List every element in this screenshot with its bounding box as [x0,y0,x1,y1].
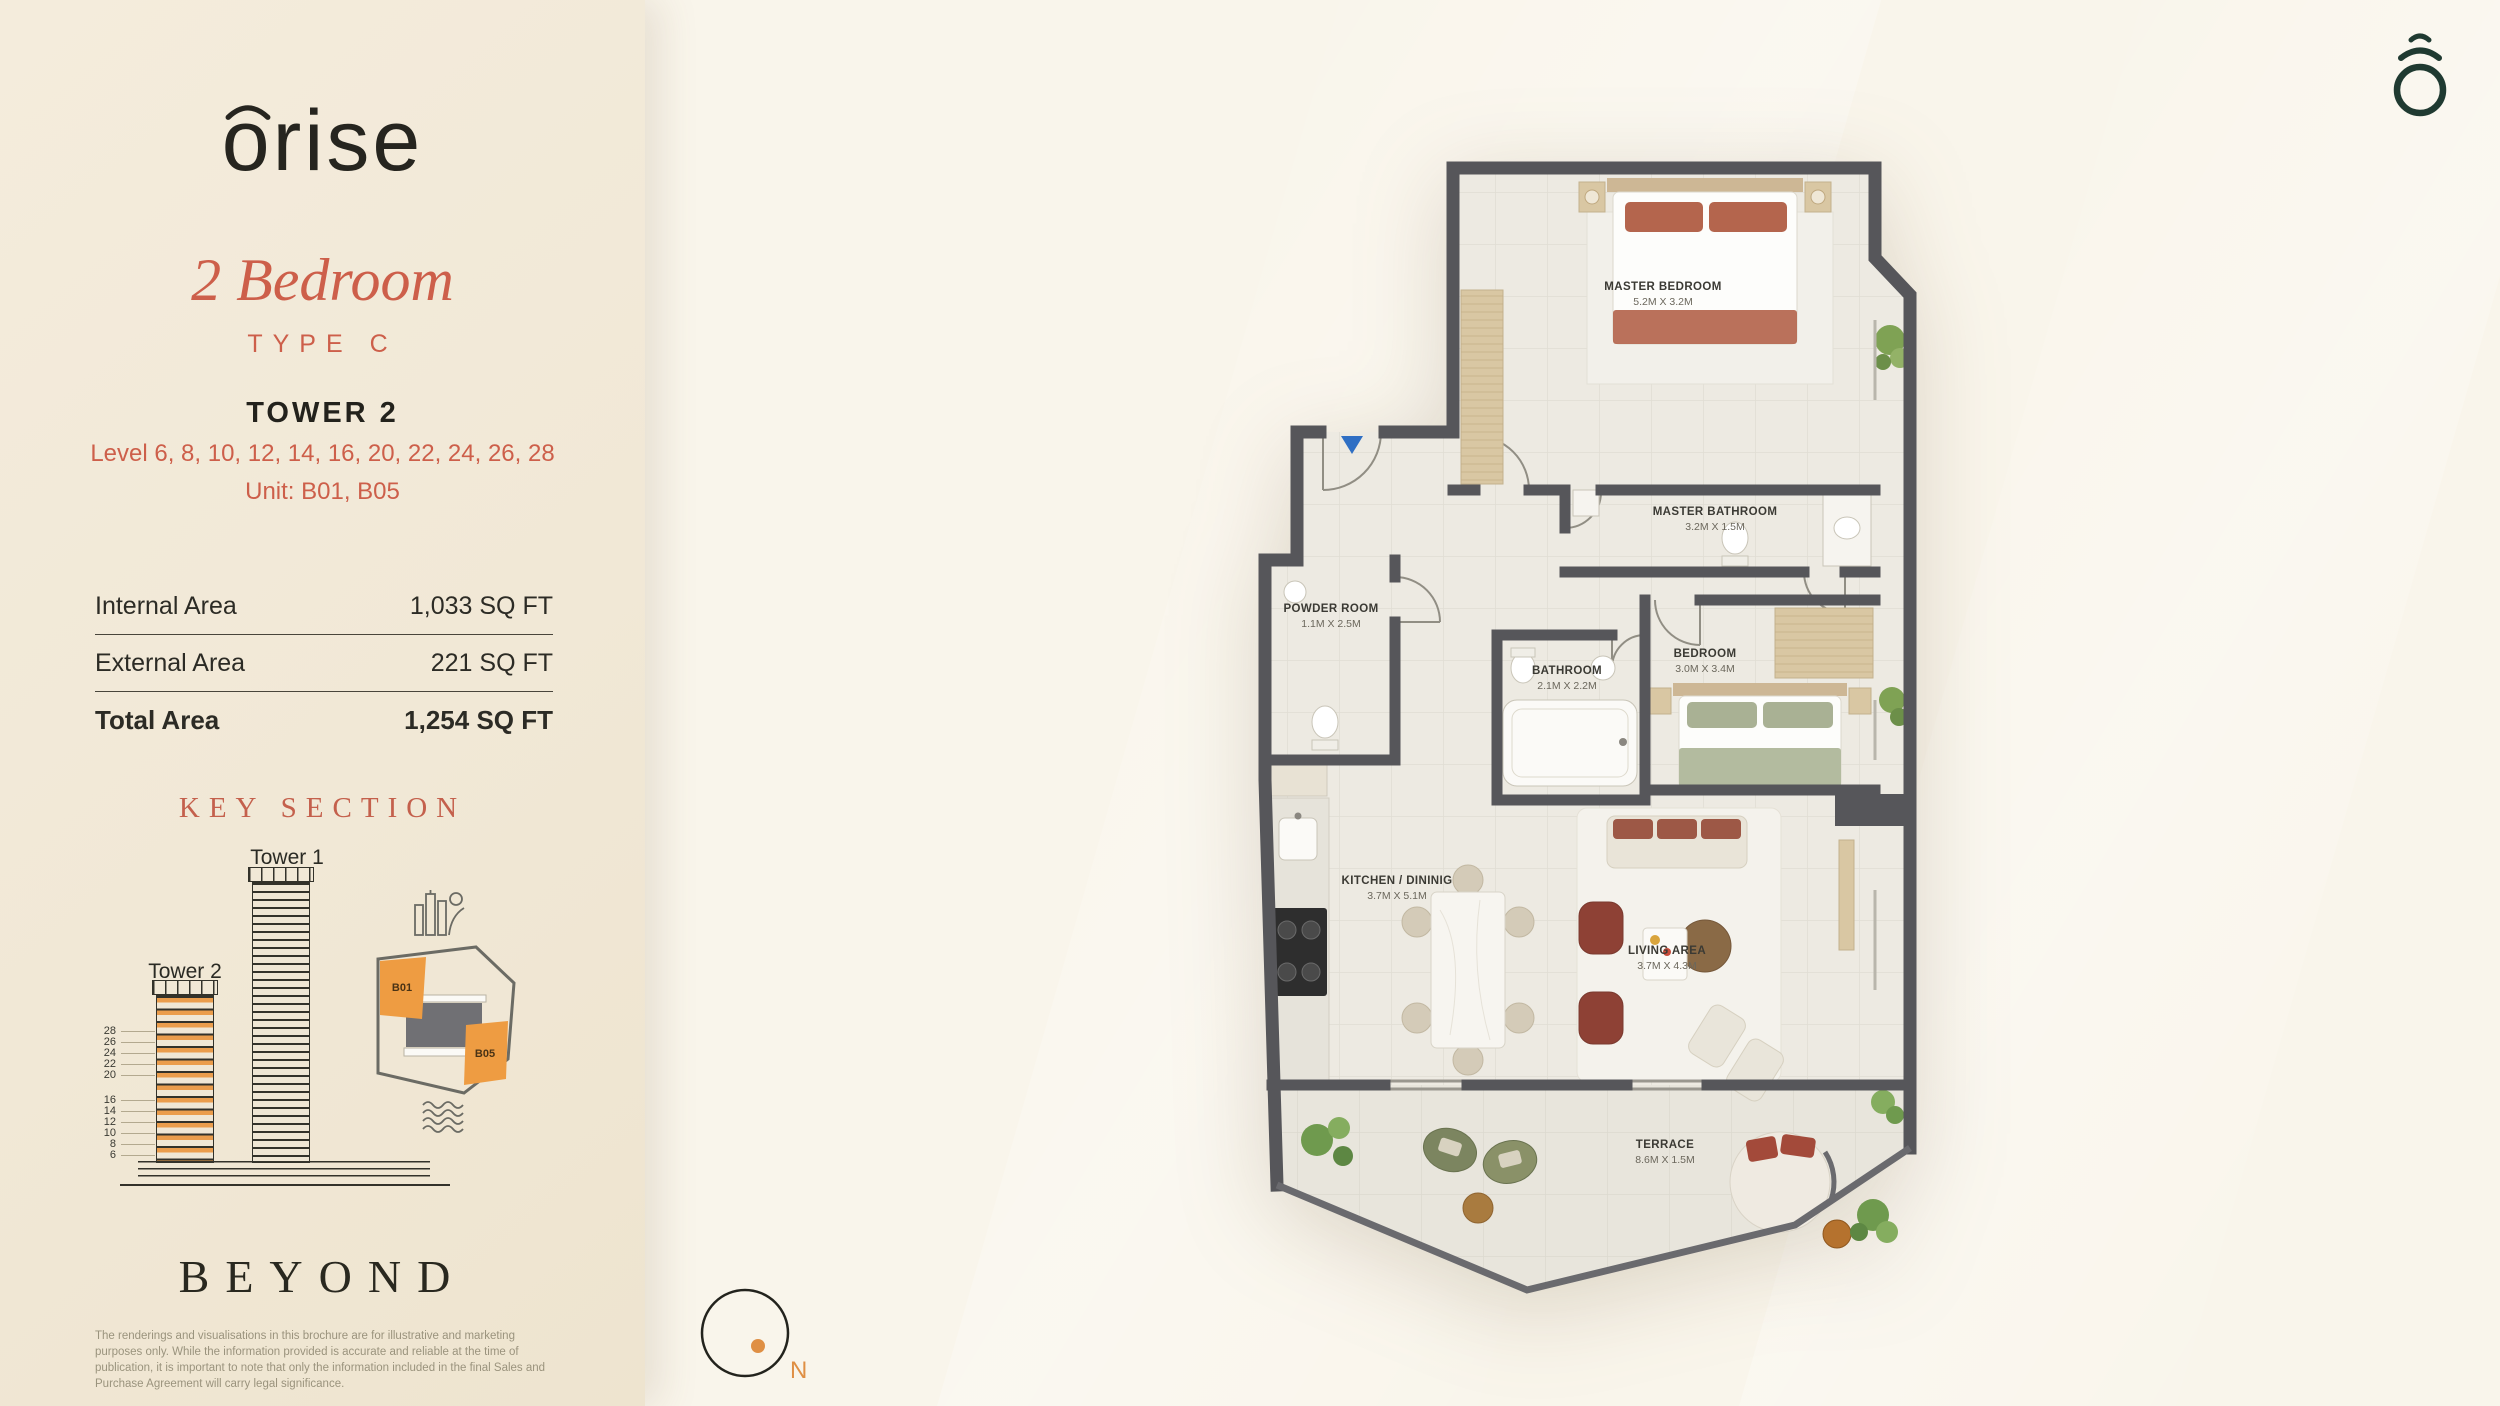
burner [1278,921,1296,939]
tower-name: TOWER 2 [0,397,645,430]
level-tick [121,1144,155,1145]
washer [1573,490,1599,516]
bathtub [1503,700,1637,786]
chair [1453,1045,1483,1075]
level-tick [121,1042,155,1043]
burner [1278,963,1296,981]
sofa-cushion [1701,819,1741,839]
room-label-kitchen-dining: KITCHEN / DININIG [1342,875,1453,887]
kitchen-sink [1279,818,1317,860]
table-row-external-area: External Area 221 SQ FT [95,634,553,691]
waves-icon [422,1100,468,1136]
flowers [1650,935,1660,945]
logo-accent-arc-icon [224,100,272,120]
level-marker-20: 20 [100,1069,155,1081]
headboard [1607,178,1803,192]
sink [1834,517,1860,539]
level-tick [121,1053,155,1054]
level-tick [121,1031,155,1032]
level-tick [121,1111,155,1112]
logo-rest: rise [273,93,424,189]
unit-title: 2 Bedroom [0,246,645,315]
sofa-cushion [1613,819,1653,839]
level-tick [121,1075,155,1076]
room-dims-kitchen-dining: 3.7M X 5.1M [1367,890,1427,902]
area-label: External Area [95,649,245,678]
area-label: Internal Area [95,592,237,621]
floor-plan: MASTER BEDROOM 5.2M X 3.2M MASTER BATHRO… [1235,140,1935,1310]
level-tick [121,1155,155,1156]
lamp [1585,190,1599,204]
room-label-terrace: TERRACE [1636,1139,1694,1151]
toilet-tank [1722,556,1748,566]
side-table [1463,1193,1493,1223]
legal-disclaimer: The renderings and visualisations in thi… [95,1328,563,1392]
blanket [1613,310,1797,344]
pouf [1823,1220,1851,1248]
level-number: 20 [100,1069,116,1081]
orise-corner-mark-icon [2385,28,2455,120]
nightstand [1649,688,1671,714]
room-label-bedroom: BEDROOM [1674,648,1737,660]
orise-logo: orise [0,92,645,191]
armchair [1579,902,1623,954]
podium-levels [138,1161,430,1181]
level-marker-6: 6 [100,1149,155,1161]
key-section-heading: KEY SECTION [0,792,645,825]
level-tick [121,1100,155,1101]
tv-console [1839,840,1854,950]
tower2-crown [152,980,218,995]
plant-icon [1850,1199,1898,1243]
info-sidebar: orise 2 Bedroom TYPE C TOWER 2 Level 6, … [0,0,645,1406]
pillow [1625,202,1703,232]
level-tick [121,1133,155,1134]
area-label: Total Area [95,705,219,736]
chair [1453,865,1483,895]
room-label-living-area: LIVING AREA [1628,945,1706,957]
room-dims-terrace: 8.6M X 1.5M [1635,1154,1695,1166]
skyline-icon [412,890,468,936]
room-dims-bedroom: 3.0M X 3.4M [1675,663,1735,675]
burner [1302,963,1320,981]
sink [1284,581,1306,603]
ground-line [120,1184,450,1186]
armchair [1579,992,1623,1044]
table-row-internal-area: Internal Area 1,033 SQ FT [95,578,553,634]
blanket [1679,748,1841,788]
area-table: Internal Area 1,033 SQ FT External Area … [95,578,553,748]
b05-label: B05 [475,1048,495,1060]
levels-line: Level 6, 8, 10, 12, 14, 16, 20, 22, 24, … [0,440,645,468]
fridge [1269,764,1327,796]
chair [1402,907,1432,937]
north-compass: N [698,1286,848,1406]
level-number: 6 [100,1149,116,1161]
compass-circle [702,1290,788,1376]
room-dims-living-area: 3.7M X 4.3M [1637,960,1697,972]
room-dims-master-bathroom: 3.2M X 1.5M [1685,521,1745,533]
room-label-powder-room: POWDER ROOM [1283,603,1378,615]
area-value: 1,033 SQ FT [410,592,553,621]
room-label-master-bathroom: MASTER BATHROOM [1653,506,1778,518]
area-value: 1,254 SQ FT [404,705,553,736]
nightstand [1849,688,1871,714]
chair [1504,907,1534,937]
beyond-logo: BEYOND [0,1250,645,1303]
headboard [1673,683,1847,696]
faucet [1619,738,1627,746]
units-line: Unit: B01, B05 [0,478,645,506]
chair [1504,1003,1534,1033]
room-dims-bathroom: 2.1M X 2.2M [1537,680,1597,692]
tower2-elevation [156,995,214,1163]
brochure-page: orise 2 Bedroom TYPE C TOWER 2 Level 6, … [0,0,2500,1406]
north-label: N [790,1357,807,1384]
room-dims-powder-room: 1.1M X 2.5M [1301,618,1361,630]
toilet-tank [1312,740,1338,750]
tower1-crown [248,867,314,882]
pillow [1763,702,1833,728]
table-row-total-area: Total Area 1,254 SQ FT [95,691,553,748]
b01-label: B01 [392,982,412,994]
sofa-cushion [1657,819,1697,839]
room-dims-master-bedroom: 5.2M X 3.2M [1633,296,1693,308]
dining-table [1431,892,1505,1048]
pillow [1687,702,1757,728]
toilet-tank [1511,648,1535,657]
toilet [1312,706,1338,738]
tower1-elevation [252,882,310,1163]
chair [1402,1003,1432,1033]
logo-o-with-accent: o [222,92,273,191]
compass-dot [751,1339,765,1353]
burner [1302,921,1320,939]
room-label-master-bedroom: MASTER BEDROOM [1604,281,1721,293]
unit-type: TYPE C [0,330,645,359]
lamp [1811,190,1825,204]
faucet [1295,813,1302,820]
wall-pier [1835,794,1910,826]
stove [1271,908,1327,996]
level-tick [121,1122,155,1123]
room-label-bathroom: BATHROOM [1532,665,1602,677]
pillow [1709,202,1787,232]
level-tick [121,1064,155,1065]
key-section-diagram: Tower 1 Tower 2 28 26 24 22 20 16 14 12 … [90,838,570,1218]
area-value: 221 SQ FT [431,649,553,678]
unit-key-plan: B01 B05 [368,941,518,1101]
